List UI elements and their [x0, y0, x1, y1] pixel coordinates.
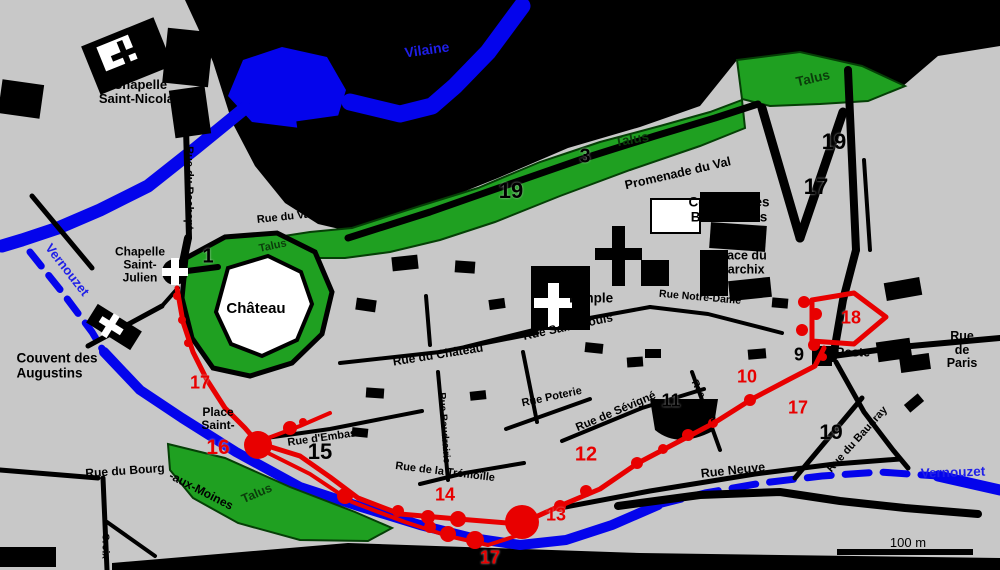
- scale-bar: [837, 549, 973, 555]
- building: [748, 348, 767, 360]
- building: [700, 250, 728, 296]
- road-sw-diag: [107, 522, 155, 556]
- road-small-2: [523, 352, 537, 422]
- building: [169, 86, 211, 139]
- tower-dot: [682, 429, 694, 441]
- tower-dot: [466, 531, 484, 549]
- road-rachapt: [186, 128, 189, 238]
- tower-dot: [796, 324, 808, 336]
- building: [455, 260, 476, 273]
- building: [709, 222, 767, 252]
- building: [884, 277, 923, 301]
- building: [772, 297, 789, 308]
- road-rue-poterie: [506, 399, 590, 429]
- road-tremoille: [420, 463, 524, 484]
- tower-dot: [178, 316, 186, 324]
- tower-dot: [580, 485, 592, 497]
- tower-dot: [450, 511, 466, 527]
- building: [352, 427, 369, 438]
- road-julien-east: [187, 267, 218, 271]
- tower-dot: [440, 526, 456, 542]
- tower-dot: [658, 444, 668, 454]
- tower-dot: [819, 353, 827, 361]
- road-ne-2: [800, 112, 843, 238]
- tower-dot: [184, 339, 192, 347]
- tower-dot: [283, 421, 297, 435]
- south-dark-band: [112, 543, 1000, 570]
- map-canvas: Vilaine Chapelle Saint-Nicolas Rue du Ra…: [0, 0, 1000, 570]
- building: [585, 342, 604, 354]
- fort-18-outline: [812, 293, 886, 344]
- building: [904, 393, 924, 412]
- tower-dot: [337, 488, 353, 504]
- tower-dot: [299, 418, 307, 426]
- tower-dot: [554, 500, 566, 512]
- couvent-benedictins-building: [651, 199, 700, 233]
- building: [366, 387, 385, 398]
- tower-dot: [424, 521, 436, 533]
- building: [641, 260, 669, 286]
- south-dark-corner: [0, 547, 56, 567]
- building: [470, 390, 487, 401]
- road-rue-notre-dame: [650, 307, 782, 333]
- building: [645, 349, 661, 358]
- building: [0, 79, 44, 119]
- building: [488, 298, 505, 310]
- road-small-1: [426, 296, 430, 345]
- tower-dot: [173, 292, 181, 300]
- map-svg: [0, 0, 1000, 570]
- road-ne-1: [762, 108, 800, 238]
- building: [162, 28, 213, 88]
- benedictins-cross-h: [595, 248, 642, 260]
- road-bourg-west: [0, 470, 98, 478]
- tower-dot: [808, 339, 820, 351]
- building: [728, 277, 772, 301]
- building: [627, 356, 644, 367]
- tower-dot: [244, 431, 272, 459]
- tower-dot: [708, 418, 718, 428]
- building: [700, 192, 760, 222]
- church-cross-h: [162, 268, 188, 276]
- tower-dot: [810, 308, 822, 320]
- tower-dot: [744, 394, 756, 406]
- road-baudrairie: [438, 372, 448, 480]
- building: [355, 298, 376, 313]
- stream-vernouzet-east-end: [938, 476, 1000, 490]
- temple-cross-h: [534, 298, 572, 308]
- building: [391, 255, 418, 272]
- tower-dot: [798, 296, 810, 308]
- tower-dot: [631, 457, 643, 469]
- road-east-vert: [864, 160, 870, 250]
- building: [296, 115, 347, 177]
- chateau-building: [216, 256, 312, 356]
- tower-dot: [392, 505, 404, 517]
- tower-dot: [505, 505, 539, 539]
